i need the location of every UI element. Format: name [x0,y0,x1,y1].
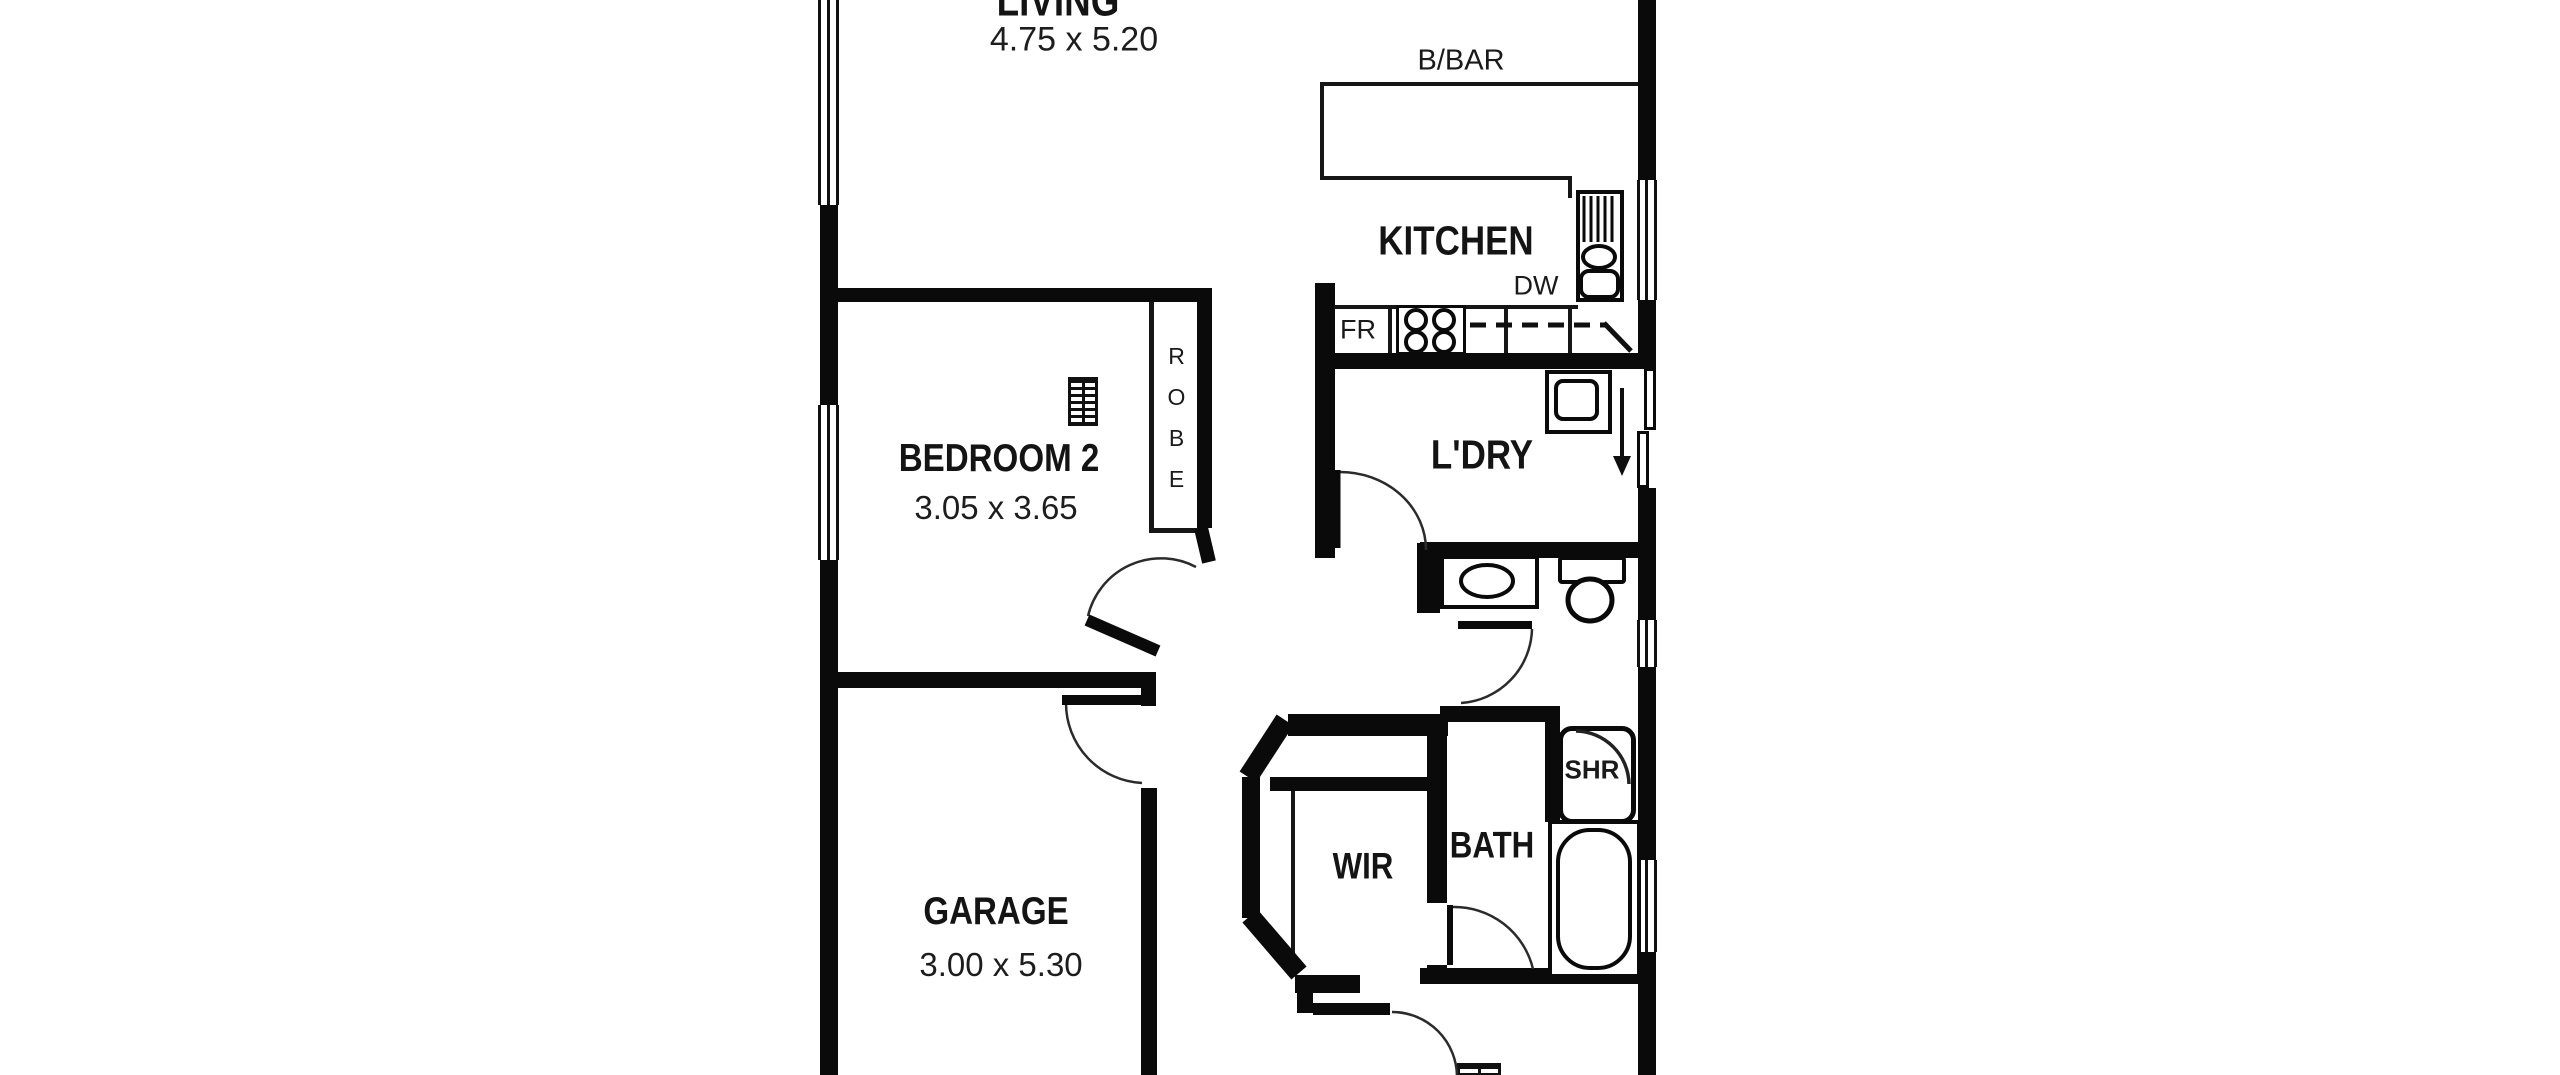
laundry-label: L'DRY [1431,433,1533,479]
bath-label: BATH [1450,825,1535,867]
dishwasher-label: DW [1514,271,1559,302]
robe-label: ROBE [1163,343,1190,507]
living-room-dims: 4.75 x 5.20 [990,21,1158,60]
bedroom2-door-leaf [1087,620,1158,651]
floorplan-canvas: LIVING 4.75 x 5.20 B/BAR KITCHEN DW FR R… [0,0,2560,1075]
wir-door-arc [1392,1012,1457,1075]
wc-door-arc [1461,629,1532,703]
garage-label: GARAGE [923,888,1068,933]
cooktop-burners-icon [1406,310,1454,352]
vanity-basin-icon [1461,565,1513,597]
garage-door-arc [1066,703,1142,783]
wir-label: WIR [1333,846,1394,888]
kitchen-label: KITCHEN [1378,219,1533,265]
bedroom2-dims: 3.05 x 3.65 [914,489,1077,527]
bedroom2-door-arc [1088,558,1196,616]
wir-angled-wall [1250,916,1299,973]
robe-jamb-angled [1201,528,1209,562]
door-direction-arrowhead [1613,456,1631,476]
fridge-label: FR [1340,315,1376,346]
bedroom2-label: BEDROOM 2 [899,435,1100,480]
kitchen-sink-detail [1581,196,1618,297]
hall-angled-wall [1248,720,1285,777]
garage-dims: 3.00 x 5.30 [919,946,1082,984]
bath-door-arc [1452,907,1533,969]
plan-linework [0,0,2560,1075]
breakfast-bar-label: B/BAR [1417,45,1504,78]
toilet-bowl-icon [1568,579,1612,621]
laundry-door-arc [1340,472,1426,550]
shower-label: SHR [1565,755,1620,786]
overhead-cupboard-return [1604,323,1631,351]
